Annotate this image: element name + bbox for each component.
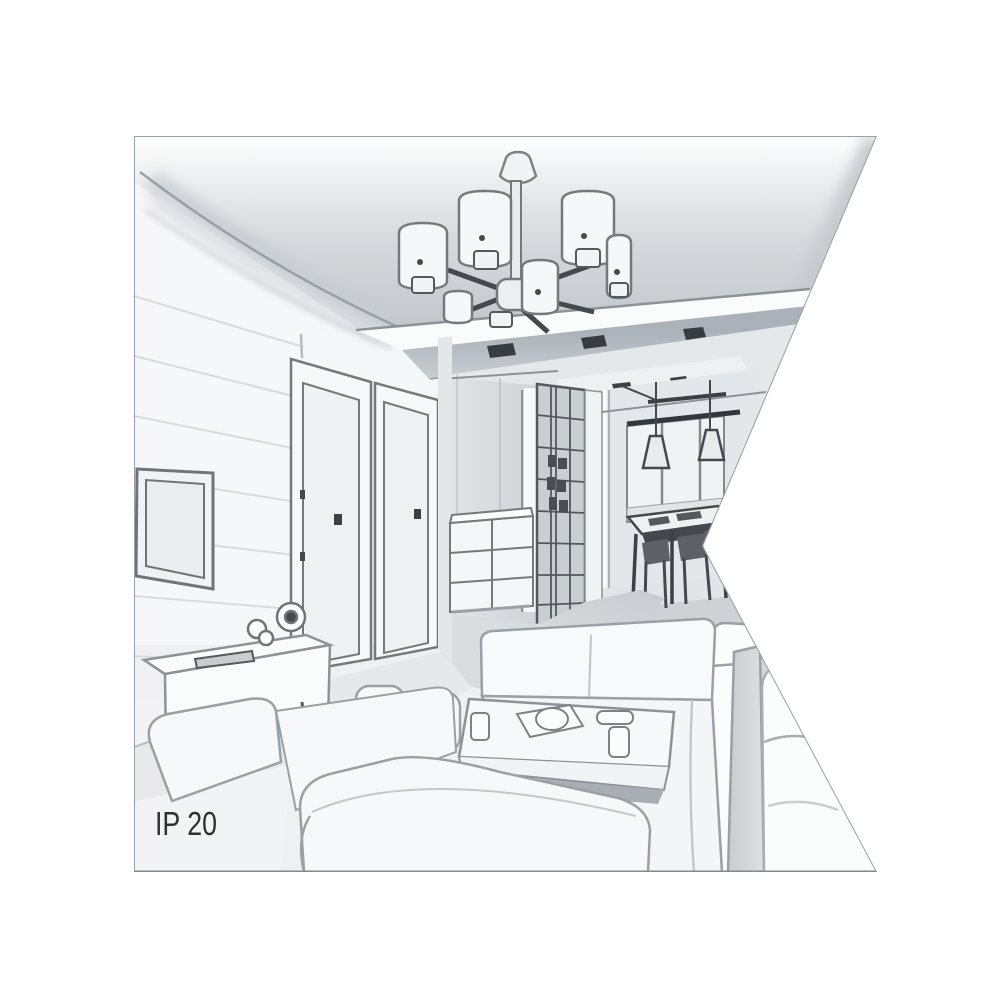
svg-text:IP 20: IP 20 xyxy=(155,805,217,842)
